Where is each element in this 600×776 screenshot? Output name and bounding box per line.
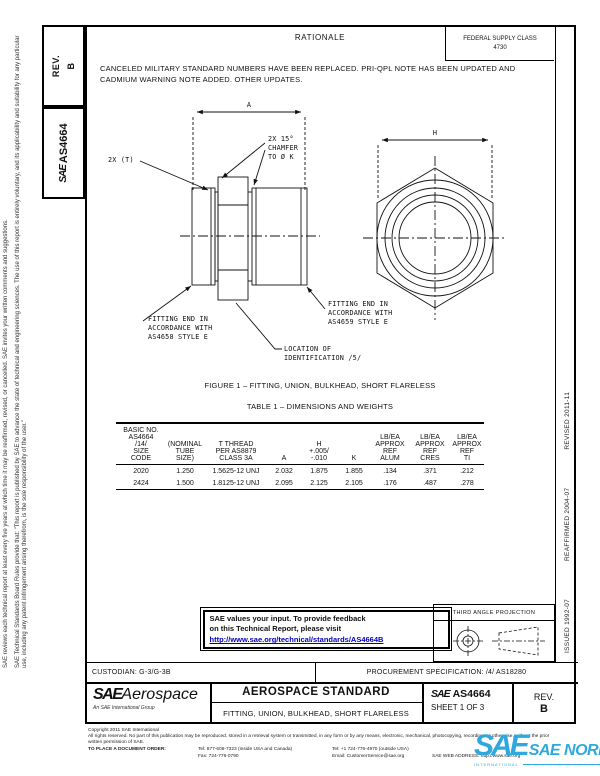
- revision-strip: ISSUED 1992-07 REAFFIRMED 2004-07 REVISE…: [556, 27, 578, 665]
- cell-alum: .134: [370, 468, 410, 475]
- cell-k: 1.855: [338, 468, 370, 475]
- feedback-line2: on this Technical Report, please visit: [210, 624, 443, 635]
- cell-h: 2.125: [300, 480, 338, 487]
- rationale-body: CANCELED MILITARY STANDARD NUMBERS HAVE …: [100, 64, 552, 86]
- cell-tube-size: 1.250: [166, 468, 204, 475]
- sae-logo: SAE: [431, 688, 450, 700]
- table-header-row: BASIC NO. AS4664 /14/ SIZE CODE (NOMINAL…: [116, 424, 484, 465]
- dimensions-table: BASIC NO. AS4664 /14/ SIZE CODE (NOMINAL…: [116, 422, 484, 490]
- logo-subtitle: An SAE International Group: [93, 705, 210, 711]
- cell-cres: .487: [410, 480, 450, 487]
- rev-label: REV.: [51, 55, 61, 77]
- projection-symbol-icon: [434, 621, 553, 661]
- revision-cell: REV. B: [512, 682, 576, 724]
- cell-a: 2.032: [268, 468, 300, 475]
- sheet-number: SHEET 1 OF 3: [431, 703, 512, 712]
- cell-size-code: 2424: [116, 480, 166, 487]
- cell-k: 2.105: [338, 480, 370, 487]
- aerospace-logo-text: Aerospace: [121, 686, 198, 703]
- federal-supply-class: 4730: [493, 44, 506, 53]
- cell-ti: .212: [450, 468, 484, 475]
- col-header-thread: T THREAD PER AS8879 CLASS 3A: [204, 441, 268, 462]
- cell-h: 1.875: [300, 468, 338, 475]
- table-row: 2424 1.500 1.8125-12 UNJ 2.095 2.125 2.1…: [116, 477, 484, 489]
- order-email: Email: CustomerService@sae.org: [332, 754, 404, 760]
- callout-fitting-end-left: FITTING END IN ACCORDANCE WITH AS4658 ST…: [148, 315, 212, 343]
- table-row: 2020 1.250 1.5625-12 UNJ 2.032 1.875 1.8…: [116, 465, 484, 477]
- sae-logo: SAE: [58, 165, 69, 183]
- order-label: TO PLACE A DOCUMENT ORDER:: [88, 747, 166, 753]
- col-header-size-code: BASIC NO. AS4664 /14/ SIZE CODE: [116, 427, 166, 462]
- order-tel-2: Tel: +1 724-776-4970 (outside USA): [332, 747, 409, 753]
- sae-aerospace-logo: SAEAerospace An SAE International Group: [85, 682, 210, 724]
- cell-cres: .371: [410, 468, 450, 475]
- order-fax: Fax: 724-776-0790: [198, 754, 239, 760]
- callout-chamfer: 2X 15° CHAMFER TO Ø K: [268, 135, 298, 163]
- rev-box: REV. B: [42, 25, 85, 107]
- end-view: [363, 140, 507, 320]
- dimension-a-label: A: [243, 101, 255, 110]
- cell-tube-size: 1.500: [166, 480, 204, 487]
- sae-norm-watermark: SAE SAE NORM INTERNATIONAL: [474, 731, 600, 767]
- rev-value: B: [540, 703, 548, 715]
- third-angle-projection-box: THIRD ANGLE PROJECTION: [433, 604, 555, 662]
- document-title: FITTING, UNION, BULKHEAD, SHORT FLARELES…: [210, 702, 422, 724]
- procurement-spec-field: PROCUREMENT SPECIFICATION: /4/ AS18280: [315, 662, 578, 682]
- rationale-title: RATIONALE: [85, 33, 555, 42]
- cell-alum: .176: [370, 480, 410, 487]
- col-header-cres: LB/EA APPROX REF CRES: [410, 434, 450, 462]
- doc-number-box: SAE AS4664: [42, 107, 85, 199]
- col-header-h: H +.005/ -.010: [300, 441, 338, 462]
- projection-title: THIRD ANGLE PROJECTION: [434, 605, 554, 621]
- col-header-k: K: [338, 455, 370, 462]
- disclaimer-outer: SAE reviews each technical report at lea…: [3, 28, 11, 668]
- col-header-tube-size: (NOMINAL TUBE SIZE): [166, 441, 204, 462]
- custodian-field: CUSTODIAN: G-3/G-3B: [85, 662, 320, 682]
- watermark-rule: [523, 764, 600, 765]
- sae-logo: SAE: [93, 686, 121, 703]
- callout-location-identification: LOCATION OF IDENTIFICATION /5/: [284, 345, 361, 363]
- document-number: AS4664: [453, 688, 491, 700]
- dimension-h-label: H: [429, 129, 441, 138]
- feedback-link[interactable]: http://www.sae.org/technical/standards/A…: [210, 635, 384, 644]
- rev-label: REV.: [534, 692, 554, 702]
- reaffirmed-date: REAFFIRMED 2004-07: [564, 488, 571, 561]
- callout-2x-t: 2X (T): [108, 156, 134, 165]
- col-header-ti: LB/EA APPROX REF TI: [450, 434, 484, 462]
- disclaimer-inner: SAE Technical Standards Board Rules prov…: [15, 28, 30, 668]
- document-page: SAE reviews each technical report at lea…: [0, 0, 600, 776]
- cell-a: 2.095: [268, 480, 300, 487]
- order-tel-1: Tel: 877-606-7323 (inside USA and Canada…: [198, 747, 292, 753]
- col-header-alum: LB/EA APPROX REF ALUM: [370, 434, 410, 462]
- issued-date: ISSUED 1992-07: [564, 599, 571, 653]
- revised-date: REVISED 2011-11: [564, 392, 571, 450]
- watermark-subtitle: INTERNATIONAL: [474, 762, 519, 767]
- cell-thread: 1.5625-12 UNJ: [204, 468, 268, 475]
- cell-thread: 1.8125-12 UNJ: [204, 480, 268, 487]
- document-type: AEROSPACE STANDARD: [210, 682, 422, 702]
- figure-caption: FIGURE 1 – FITTING, UNION, BULKHEAD, SHO…: [85, 381, 555, 390]
- watermark-text: SAE NORM: [529, 743, 600, 761]
- watermark-sae-logo: SAE: [474, 731, 527, 761]
- left-margin-disclaimer: SAE reviews each technical report at lea…: [3, 28, 37, 668]
- cell-ti: .278: [450, 480, 484, 487]
- feedback-line1: SAE values your input. To provide feedba…: [210, 614, 443, 625]
- rev-box-label: REV. B: [49, 55, 78, 77]
- table-title: TABLE 1 – DIMENSIONS AND WEIGHTS: [85, 402, 555, 411]
- callout-fitting-end-right: FITTING END IN ACCORDANCE WITH AS4659 ST…: [328, 300, 392, 328]
- doc-number: AS4664: [58, 123, 70, 163]
- feedback-box: SAE values your input. To provide feedba…: [200, 607, 452, 651]
- rev-value: B: [66, 63, 76, 70]
- document-number-cell: SAEAS4664 SHEET 1 OF 3: [422, 682, 512, 724]
- cell-size-code: 2020: [116, 468, 166, 475]
- col-header-a: A: [268, 455, 300, 462]
